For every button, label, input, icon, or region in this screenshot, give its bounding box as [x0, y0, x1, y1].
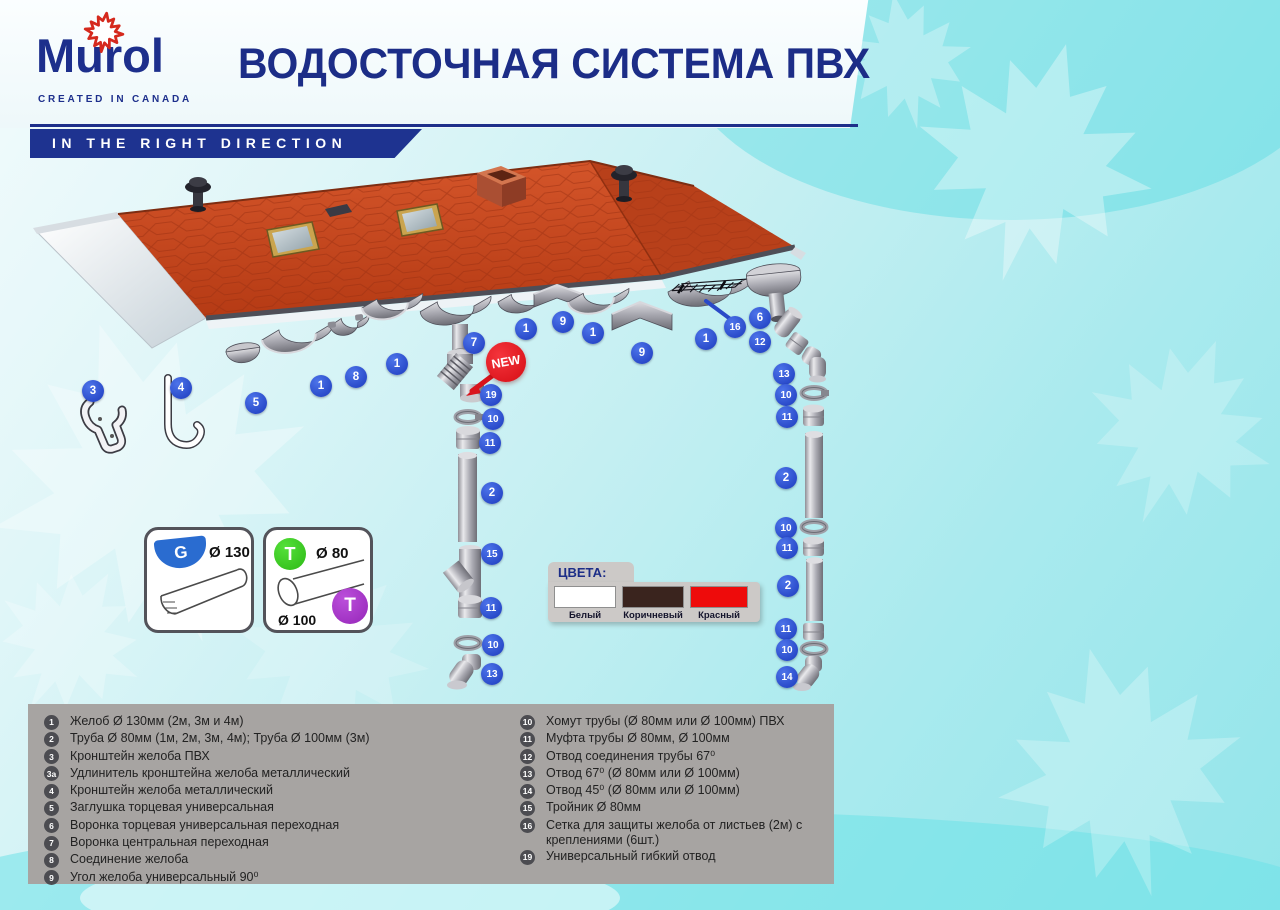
legend-text: Соединение желоба — [70, 852, 188, 868]
legend-item-13: 13Отвод 67⁰ (Ø 80мм или Ø 100мм) — [520, 766, 820, 782]
legend-text: Отвод соединения трубы 67⁰ — [546, 749, 715, 765]
legend-bullet-19: 19 — [520, 850, 535, 865]
part-marker-9: 9 — [631, 342, 653, 364]
legend-bullet-3a: 3a — [44, 766, 59, 781]
part-marker-13: 13 — [481, 663, 503, 685]
legend-bullet-12: 12 — [520, 749, 535, 764]
spec-box-pipe: T Ø 80 Ø 100 T — [263, 527, 373, 633]
part-marker-15: 15 — [481, 543, 503, 565]
legend-bullet-16: 16 — [520, 818, 535, 833]
part-marker-11: 11 — [479, 432, 501, 454]
part-marker-1: 1 — [582, 322, 604, 344]
legend-text: Кронштейн желоба металлический — [70, 783, 273, 799]
legend-item-9: 9Угол желоба универсальный 90⁰ — [44, 870, 464, 886]
part-flex-elbow — [437, 349, 484, 403]
part-marker-10: 10 — [482, 634, 504, 656]
part-marker-7: 7 — [463, 332, 485, 354]
part-marker-4: 4 — [170, 377, 192, 399]
part-marker-11: 11 — [480, 597, 502, 619]
legend-item-10: 10Хомут трубы (Ø 80мм или Ø 100мм) ПВХ — [520, 714, 820, 730]
legend-text: Воронка центральная переходная — [70, 835, 269, 851]
legend-text: Удлинитель кронштейна желоба металлическ… — [70, 766, 350, 782]
part-marker-5: 5 — [245, 392, 267, 414]
legend-item-12: 12Отвод соединения трубы 67⁰ — [520, 749, 820, 765]
part-marker-9: 9 — [552, 311, 574, 333]
part-marker-12: 12 — [749, 331, 771, 353]
legend-text: Заглушка торцевая универсальная — [70, 800, 274, 816]
legend-text: Воронка торцевая универсальная переходна… — [70, 818, 339, 834]
legend-bullet-8: 8 — [44, 853, 59, 868]
part-marker-10: 10 — [775, 384, 797, 406]
legend-column-right: 10Хомут трубы (Ø 80мм или Ø 100мм) ПВХ11… — [520, 714, 820, 866]
part-gutter-corner — [612, 302, 672, 330]
legend-bullet-3: 3 — [44, 749, 59, 764]
color-swatch-1 — [554, 586, 616, 608]
legend-panel: 1Желоб Ø 130мм (2м, 3м и 4м)2Труба Ø 80м… — [28, 704, 834, 884]
spec-box-gutter: G Ø 130 — [144, 527, 254, 633]
legend-item-19: 19Универсальный гибкий отвод — [520, 849, 820, 865]
part-marker-10: 10 — [776, 639, 798, 661]
colors-panel-title: ЦВЕТА: — [548, 562, 634, 582]
part-marker-19: 19 — [480, 384, 502, 406]
legend-item-7: 7Воронка центральная переходная — [44, 835, 464, 851]
part-endcap — [225, 341, 261, 365]
legend-text: Тройник Ø 80мм — [546, 800, 641, 816]
legend-item-3: 3Кронштейн желоба ПВХ — [44, 749, 464, 765]
legend-item-8: 8Соединение желоба — [44, 852, 464, 868]
part-marker-6: 6 — [749, 307, 771, 329]
part-marker-1: 1 — [386, 353, 408, 375]
legend-bullet-15: 15 — [520, 801, 535, 816]
legend-bullet-1: 1 — [44, 715, 59, 730]
legend-bullet-14: 14 — [520, 784, 535, 799]
legend-text: Хомут трубы (Ø 80мм или Ø 100мм) ПВХ — [546, 714, 785, 730]
legend-item-1: 1Желоб Ø 130мм (2м, 3м и 4м) — [44, 714, 464, 730]
part-gutter — [261, 323, 335, 356]
legend-bullet-4: 4 — [44, 784, 59, 799]
legend-text: Кронштейн желоба ПВХ — [70, 749, 210, 765]
part-marker-16: 16 — [724, 316, 746, 338]
gutter-sketch — [147, 530, 251, 630]
part-marker-11: 11 — [775, 618, 797, 640]
pipe-100-icon: T — [332, 588, 368, 624]
part-bracket-pvc — [85, 402, 123, 449]
legend-bullet-5: 5 — [44, 801, 59, 816]
legend-item-4: 4Кронштейн желоба металлический — [44, 783, 464, 799]
legend-bullet-7: 7 — [44, 836, 59, 851]
part-marker-1: 1 — [310, 375, 332, 397]
legend-text: Отвод 67⁰ (Ø 80мм или Ø 100мм) — [546, 766, 740, 782]
legend-item-15: 15Тройник Ø 80мм — [520, 800, 820, 816]
legend-item-3a: 3aУдлинитель кронштейна желоба металличе… — [44, 766, 464, 782]
part-marker-2: 2 — [481, 482, 503, 504]
legend-text: Универсальный гибкий отвод — [546, 849, 716, 865]
legend-item-11: 11Муфта трубы Ø 80мм, Ø 100мм — [520, 731, 820, 747]
part-marker-1: 1 — [515, 318, 537, 340]
poster-page: Murol CREATED IN CANADA ВОДОСТОЧНАЯ СИСТ… — [0, 0, 1280, 910]
part-marker-10: 10 — [482, 408, 504, 430]
legend-item-14: 14Отвод 45⁰ (Ø 80мм или Ø 100мм) — [520, 783, 820, 799]
legend-text: Муфта трубы Ø 80мм, Ø 100мм — [546, 731, 730, 747]
legend-bullet-10: 10 — [520, 715, 535, 730]
legend-bullet-6: 6 — [44, 818, 59, 833]
legend-text: Отвод 45⁰ (Ø 80мм или Ø 100мм) — [546, 783, 740, 799]
legend-text: Желоб Ø 130мм (2м, 3м и 4м) — [70, 714, 244, 730]
legend-column-left: 1Желоб Ø 130мм (2м, 3м и 4м)2Труба Ø 80м… — [44, 714, 464, 887]
downpipe-center — [437, 349, 484, 690]
part-marker-2: 2 — [777, 575, 799, 597]
roof-illustration — [33, 161, 806, 348]
part-marker-14: 14 — [776, 666, 798, 688]
color-swatch-2 — [622, 586, 684, 608]
legend-bullet-13: 13 — [520, 766, 535, 781]
part-marker-11: 11 — [776, 537, 798, 559]
part-marker-10: 10 — [775, 517, 797, 539]
part-marker-1: 1 — [695, 328, 717, 350]
part-marker-11: 11 — [776, 406, 798, 428]
legend-bullet-9: 9 — [44, 870, 59, 885]
color-swatch-label: Красный — [682, 610, 756, 621]
legend-item-16: 16Сетка для защиты желоба от листьев (2м… — [520, 818, 820, 848]
legend-item-5: 5Заглушка торцевая универсальная — [44, 800, 464, 816]
legend-text: Труба Ø 80мм (1м, 2м, 3м, 4м); Труба Ø 1… — [70, 731, 370, 747]
colors-panel: БелыйКоричневыйКрасный — [548, 582, 760, 622]
legend-item-2: 2Труба Ø 80мм (1м, 2м, 3м, 4м); Труба Ø … — [44, 731, 464, 747]
legend-text: Угол желоба универсальный 90⁰ — [70, 870, 259, 886]
part-marker-3: 3 — [82, 380, 104, 402]
part-marker-13: 13 — [773, 363, 795, 385]
legend-item-6: 6Воронка торцевая универсальная переходн… — [44, 818, 464, 834]
legend-bullet-11: 11 — [520, 732, 535, 747]
pipe-100-diameter-label: Ø 100 — [278, 612, 316, 628]
part-marker-8: 8 — [345, 366, 367, 388]
legend-bullet-2: 2 — [44, 732, 59, 747]
legend-text: Сетка для защиты желоба от листьев (2м) … — [546, 818, 820, 848]
color-swatch-label: Коричневый — [614, 610, 692, 621]
color-swatch-3 — [690, 586, 748, 608]
color-swatch-label: Белый — [546, 610, 624, 621]
part-marker-2: 2 — [775, 467, 797, 489]
